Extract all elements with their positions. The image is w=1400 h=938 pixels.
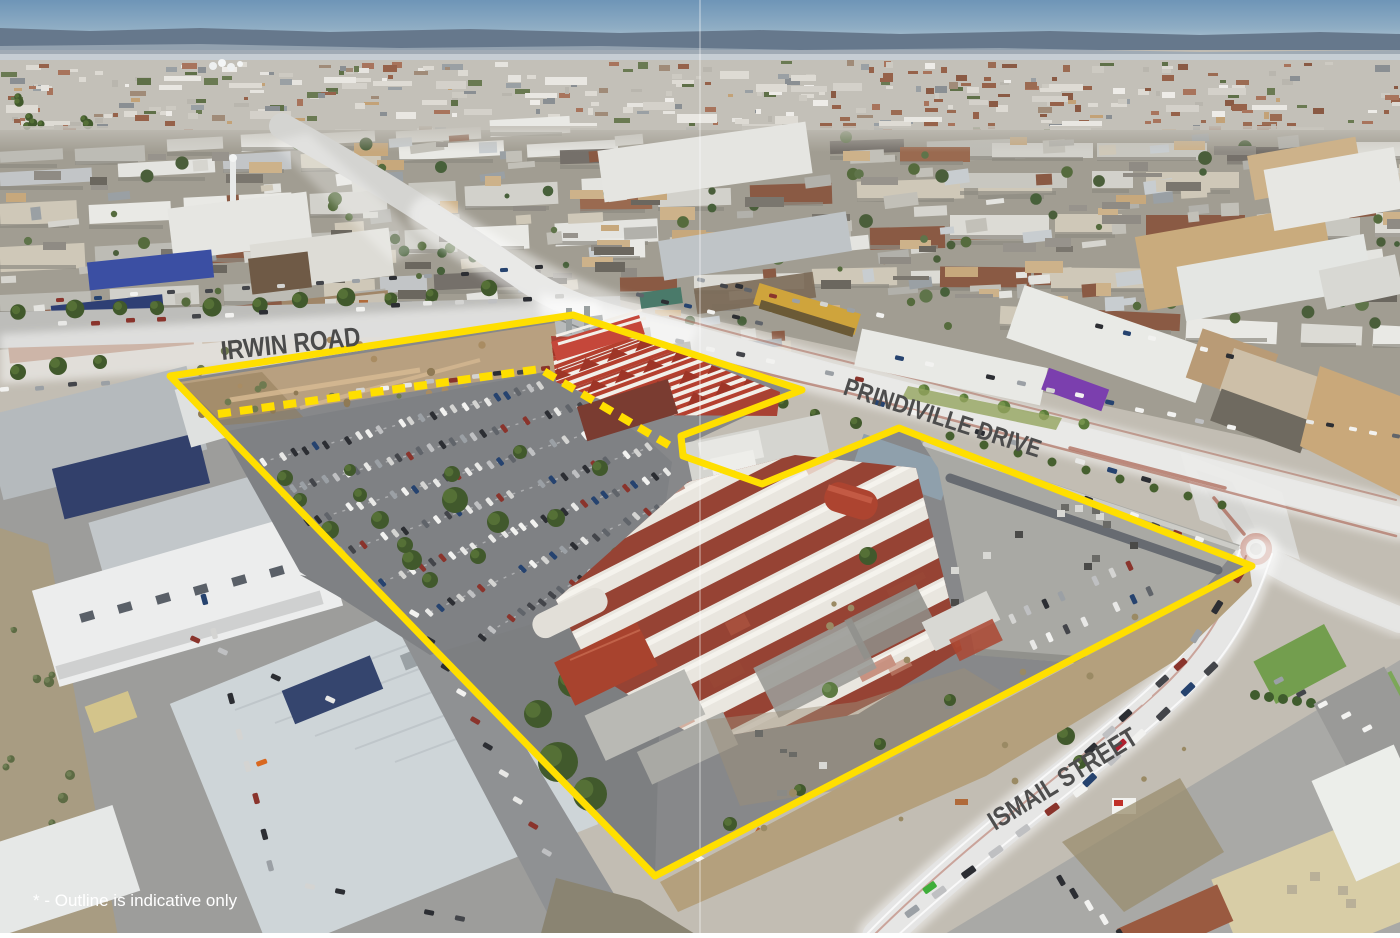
svg-text:* - Outline is indicative only: * - Outline is indicative only (33, 891, 238, 910)
